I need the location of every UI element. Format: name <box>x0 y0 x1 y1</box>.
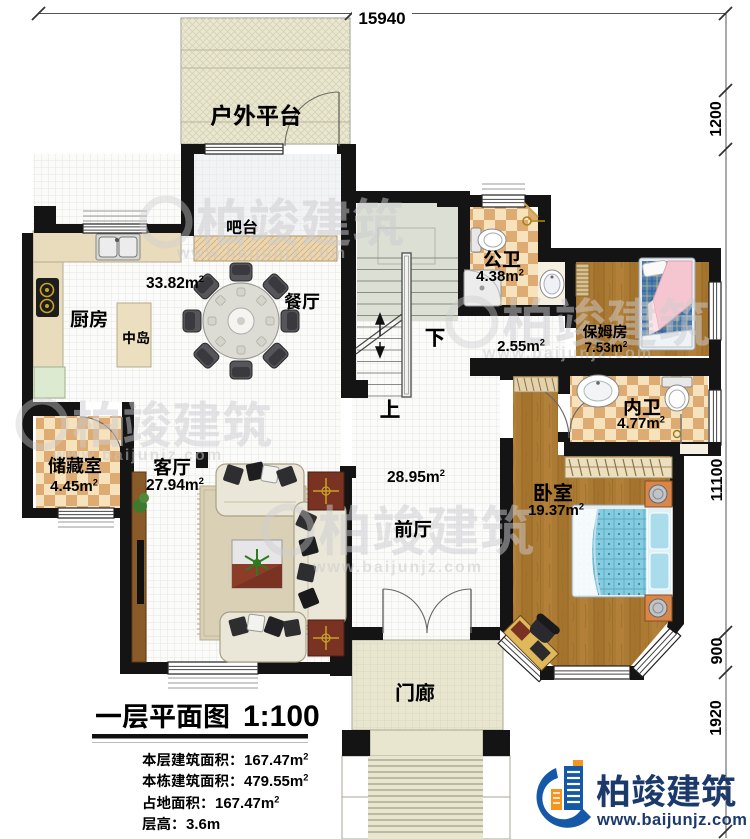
svg-text:www.baijunjz.com: www.baijunjz.com <box>312 559 483 576</box>
svg-text:www.baijunjz.com: www.baijunjz.com <box>176 245 347 262</box>
svg-text:7.53m2: 7.53m2 <box>585 339 628 355</box>
svg-text:28.95m2: 28.95m2 <box>387 468 445 486</box>
svg-text:2.55m2: 2.55m2 <box>497 337 545 355</box>
svg-text:1:100: 1:100 <box>243 700 320 733</box>
svg-text:479.55m2: 479.55m2 <box>244 772 308 790</box>
svg-text:19.37m2: 19.37m2 <box>528 501 584 519</box>
svg-text:15940: 15940 <box>358 9 405 28</box>
svg-text:4.38m2: 4.38m2 <box>476 267 524 285</box>
svg-text:167.47m2: 167.47m2 <box>215 794 279 812</box>
svg-text:900: 900 <box>709 638 726 665</box>
svg-text:3.6m: 3.6m <box>186 816 220 833</box>
svg-text:11100: 11100 <box>709 459 726 502</box>
svg-text:www.baijunjz.com: www.baijunjz.com <box>596 811 747 829</box>
svg-text:1200: 1200 <box>708 101 725 137</box>
svg-text:4.77m2: 4.77m2 <box>617 414 665 432</box>
svg-text:1920: 1920 <box>708 700 725 736</box>
svg-text:4.45m2: 4.45m2 <box>50 477 98 495</box>
svg-text:167.47m2: 167.47m2 <box>244 751 308 769</box>
svg-text:33.82m2: 33.82m2 <box>146 274 204 292</box>
svg-text:27.94m2: 27.94m2 <box>146 476 204 494</box>
